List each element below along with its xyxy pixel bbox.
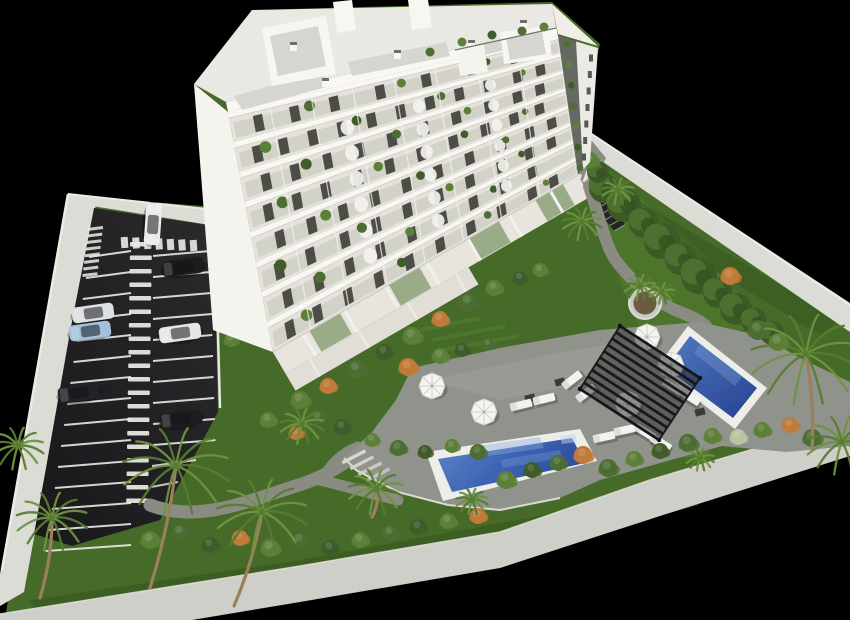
bush-highlight bbox=[752, 323, 761, 332]
curved-balcony bbox=[501, 180, 512, 192]
walkway-stripe bbox=[130, 256, 152, 261]
bush-highlight bbox=[725, 269, 733, 277]
balcony-plant bbox=[397, 258, 406, 267]
crosswalk-dash bbox=[121, 237, 129, 248]
balcony-plant bbox=[274, 259, 286, 271]
chimney-cap bbox=[394, 50, 401, 53]
bush-highlight bbox=[413, 521, 420, 528]
palm-crown bbox=[803, 351, 809, 357]
palm-crown bbox=[15, 443, 21, 449]
side-window bbox=[582, 154, 586, 161]
balcony-plant bbox=[397, 79, 406, 88]
side-window bbox=[587, 88, 591, 95]
balcony-plant bbox=[461, 130, 469, 138]
walkway-stripe bbox=[127, 445, 149, 450]
side-window bbox=[584, 121, 588, 128]
bush-highlight bbox=[603, 461, 611, 469]
walkway-stripe bbox=[127, 418, 149, 423]
balcony-plant bbox=[260, 141, 272, 153]
curved-balcony bbox=[350, 171, 364, 186]
curved-balcony bbox=[354, 197, 368, 212]
bush-highlight bbox=[205, 539, 212, 546]
walkway-stripe bbox=[128, 391, 150, 396]
bush-highlight bbox=[435, 313, 442, 320]
curved-balcony bbox=[421, 145, 433, 159]
balcony-plant bbox=[437, 92, 445, 100]
bush-highlight bbox=[501, 473, 509, 481]
palm-crown bbox=[259, 509, 265, 515]
bush-highlight bbox=[536, 265, 542, 271]
bush-highlight bbox=[578, 448, 586, 456]
bush-highlight bbox=[265, 541, 273, 549]
palm-crown bbox=[49, 515, 55, 521]
bush-highlight bbox=[295, 534, 302, 541]
crosswalk-dash bbox=[167, 239, 175, 250]
bush-highlight bbox=[325, 542, 332, 549]
corner-balcony-plant bbox=[564, 41, 571, 48]
bush-highlight bbox=[629, 453, 636, 460]
bush-highlight bbox=[683, 436, 691, 444]
roof-tower bbox=[408, 0, 432, 30]
balcony-plant bbox=[405, 227, 414, 236]
palm-crown bbox=[637, 283, 643, 289]
palm-crown bbox=[659, 289, 665, 295]
palm-crown bbox=[697, 455, 703, 461]
corner-balcony-plant bbox=[568, 82, 575, 89]
balcony-plant bbox=[373, 162, 383, 172]
bush-highlight bbox=[393, 442, 400, 449]
bush-highlight bbox=[385, 527, 392, 534]
bush-highlight bbox=[707, 430, 714, 437]
corner-balcony-plant bbox=[574, 144, 581, 151]
bush-highlight bbox=[435, 350, 442, 357]
bush-highlight bbox=[323, 380, 330, 387]
walkway-stripe bbox=[128, 364, 150, 369]
walkway-stripe bbox=[129, 310, 151, 315]
curved-balcony bbox=[498, 160, 509, 172]
curved-balcony bbox=[485, 79, 496, 91]
balcony-plant bbox=[357, 223, 367, 233]
balcony-plant bbox=[484, 211, 492, 219]
chimney-cap bbox=[322, 78, 329, 81]
crosswalk-dash bbox=[190, 240, 198, 251]
crosswalk-dash bbox=[132, 237, 140, 248]
curved-balcony bbox=[488, 99, 499, 111]
bush-highlight bbox=[484, 340, 489, 345]
balcony-plant bbox=[518, 151, 525, 158]
chimney-cap bbox=[290, 42, 297, 45]
architectural-render bbox=[0, 0, 850, 620]
balcony-plant bbox=[392, 130, 401, 139]
bush-highlight bbox=[458, 345, 464, 351]
balcony-plant bbox=[543, 179, 549, 185]
corner-balcony-plant bbox=[577, 165, 584, 172]
side-window bbox=[588, 71, 592, 78]
balcony-plant bbox=[445, 183, 453, 191]
palm-crown bbox=[839, 439, 845, 445]
bush-highlight bbox=[407, 329, 415, 337]
palm-crown bbox=[615, 187, 621, 193]
bush-highlight bbox=[757, 424, 764, 431]
curved-balcony bbox=[428, 191, 440, 205]
walkway-stripe bbox=[126, 485, 148, 490]
palm-crown bbox=[373, 486, 379, 492]
walkway-stripe bbox=[129, 337, 151, 342]
roof-terrace-plant bbox=[426, 48, 435, 57]
balcony-plant bbox=[320, 210, 331, 221]
bush-highlight bbox=[403, 360, 411, 368]
balcony-plant bbox=[301, 159, 312, 170]
side-window bbox=[583, 137, 587, 144]
bush-highlight bbox=[175, 526, 182, 533]
bush-highlight bbox=[368, 435, 374, 441]
palm-crown bbox=[579, 219, 585, 225]
palm-crown bbox=[299, 421, 305, 427]
balcony-plant bbox=[352, 116, 362, 126]
corner-balcony-plant bbox=[570, 103, 577, 110]
render-scene bbox=[0, 0, 850, 620]
walkway-stripe bbox=[127, 431, 149, 436]
balcony-plant bbox=[416, 171, 425, 180]
curved-balcony bbox=[424, 168, 436, 182]
corner-balcony-plant bbox=[572, 123, 579, 130]
bush-highlight bbox=[489, 282, 496, 289]
bush-highlight bbox=[655, 445, 662, 452]
bush-highlight bbox=[473, 446, 480, 453]
palm-crown bbox=[469, 497, 475, 503]
bush-highlight bbox=[773, 335, 781, 343]
bush-highlight bbox=[448, 441, 454, 447]
tree-shade bbox=[596, 168, 606, 178]
chimney-cap bbox=[520, 20, 527, 23]
walkway-stripe bbox=[129, 323, 151, 328]
balcony-plant bbox=[301, 309, 313, 321]
curved-balcony bbox=[491, 119, 502, 131]
bush-highlight bbox=[443, 515, 450, 522]
palm-crown bbox=[173, 463, 179, 469]
side-window bbox=[586, 104, 590, 111]
bush-highlight bbox=[785, 419, 792, 426]
walkway-stripe bbox=[130, 269, 152, 274]
bush-highlight bbox=[351, 362, 359, 370]
curved-balcony bbox=[413, 99, 425, 113]
curved-balcony bbox=[363, 248, 377, 263]
bush-highlight bbox=[733, 431, 740, 438]
bush-highlight bbox=[379, 346, 386, 353]
walkway-stripe bbox=[128, 377, 150, 382]
bush-highlight bbox=[516, 273, 522, 279]
balcony-plant bbox=[314, 272, 325, 283]
balcony-plant bbox=[464, 107, 472, 115]
bush-highlight bbox=[463, 295, 471, 303]
curved-balcony bbox=[432, 214, 444, 228]
bush-highlight bbox=[263, 414, 270, 421]
curved-balcony bbox=[417, 122, 429, 136]
bush-highlight bbox=[337, 421, 344, 428]
chimney-cap bbox=[468, 40, 475, 43]
curved-balcony bbox=[345, 145, 359, 160]
bush-highlight bbox=[527, 464, 534, 471]
bush-highlight bbox=[553, 457, 560, 464]
bush-highlight bbox=[421, 447, 427, 453]
roof-terrace-plant bbox=[488, 31, 497, 40]
walkway-stripe bbox=[128, 350, 150, 355]
walkway-stripe bbox=[128, 404, 150, 409]
balcony-plant bbox=[502, 136, 509, 143]
bush-highlight bbox=[355, 534, 362, 541]
bush-highlight bbox=[295, 393, 303, 401]
corner-balcony-plant bbox=[566, 61, 573, 68]
side-window bbox=[589, 55, 593, 62]
crosswalk-dash bbox=[178, 239, 186, 250]
walkway-stripe bbox=[129, 283, 151, 288]
roof-terrace-plant bbox=[458, 38, 467, 47]
walkway-stripe bbox=[129, 296, 151, 301]
roof-tower bbox=[333, 0, 356, 33]
bush-highlight bbox=[145, 533, 153, 541]
